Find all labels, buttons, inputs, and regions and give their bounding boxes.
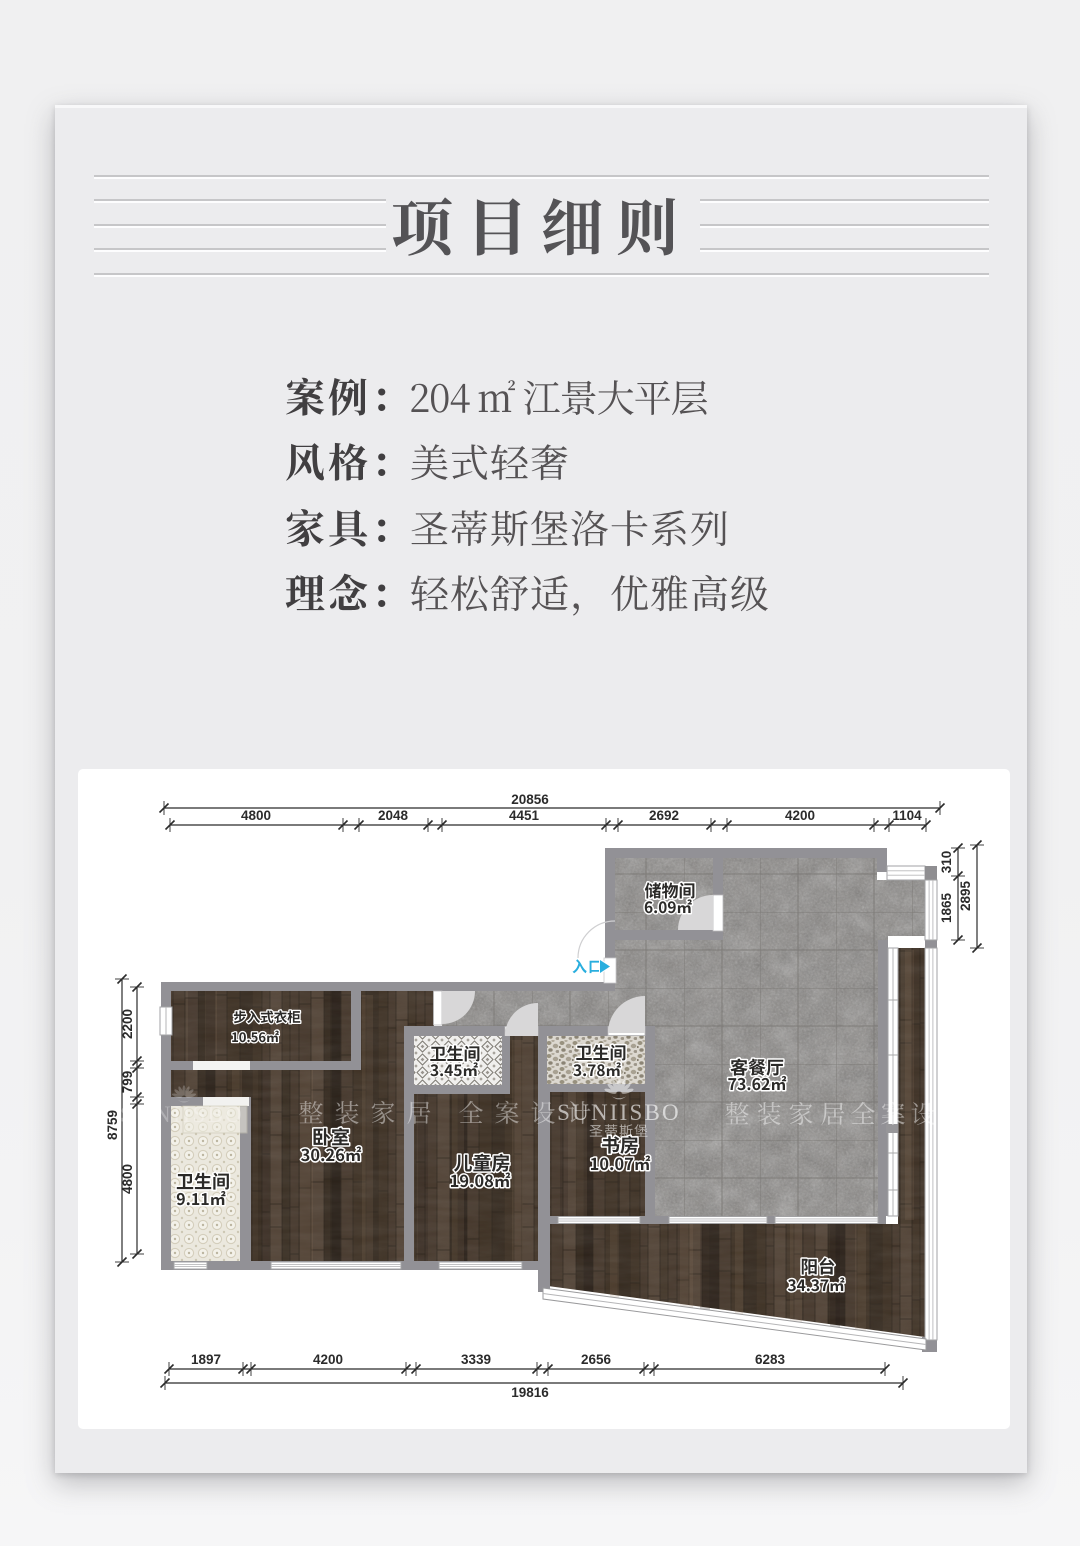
svg-text:20856: 20856 (511, 792, 549, 807)
svg-text:SUNIISBO: SUNIISBO (120, 1102, 244, 1127)
svg-text:799: 799 (120, 1071, 135, 1094)
svg-text:1104: 1104 (892, 808, 922, 823)
svg-text:3339: 3339 (461, 1352, 491, 1367)
svg-text:1897: 1897 (191, 1352, 221, 1367)
svg-text:2048: 2048 (378, 808, 409, 823)
svg-text:2692: 2692 (649, 808, 679, 823)
svg-text:4200: 4200 (313, 1352, 343, 1367)
svg-text:2656: 2656 (581, 1352, 612, 1367)
svg-text:2200: 2200 (120, 1009, 135, 1039)
svg-text:8759: 8759 (105, 1110, 120, 1140)
svg-text:4800: 4800 (241, 808, 271, 823)
svg-text:6283: 6283 (755, 1352, 786, 1367)
svg-text:2895: 2895 (958, 880, 973, 911)
svg-text:4800: 4800 (120, 1164, 135, 1194)
svg-text:4451: 4451 (509, 808, 540, 823)
svg-text:19816: 19816 (511, 1385, 549, 1400)
svg-text:SUNIISBO: SUNIISBO (557, 1100, 681, 1125)
svg-text:310: 310 (939, 851, 954, 874)
svg-text:1865: 1865 (939, 892, 954, 923)
svg-text:4200: 4200 (785, 808, 815, 823)
